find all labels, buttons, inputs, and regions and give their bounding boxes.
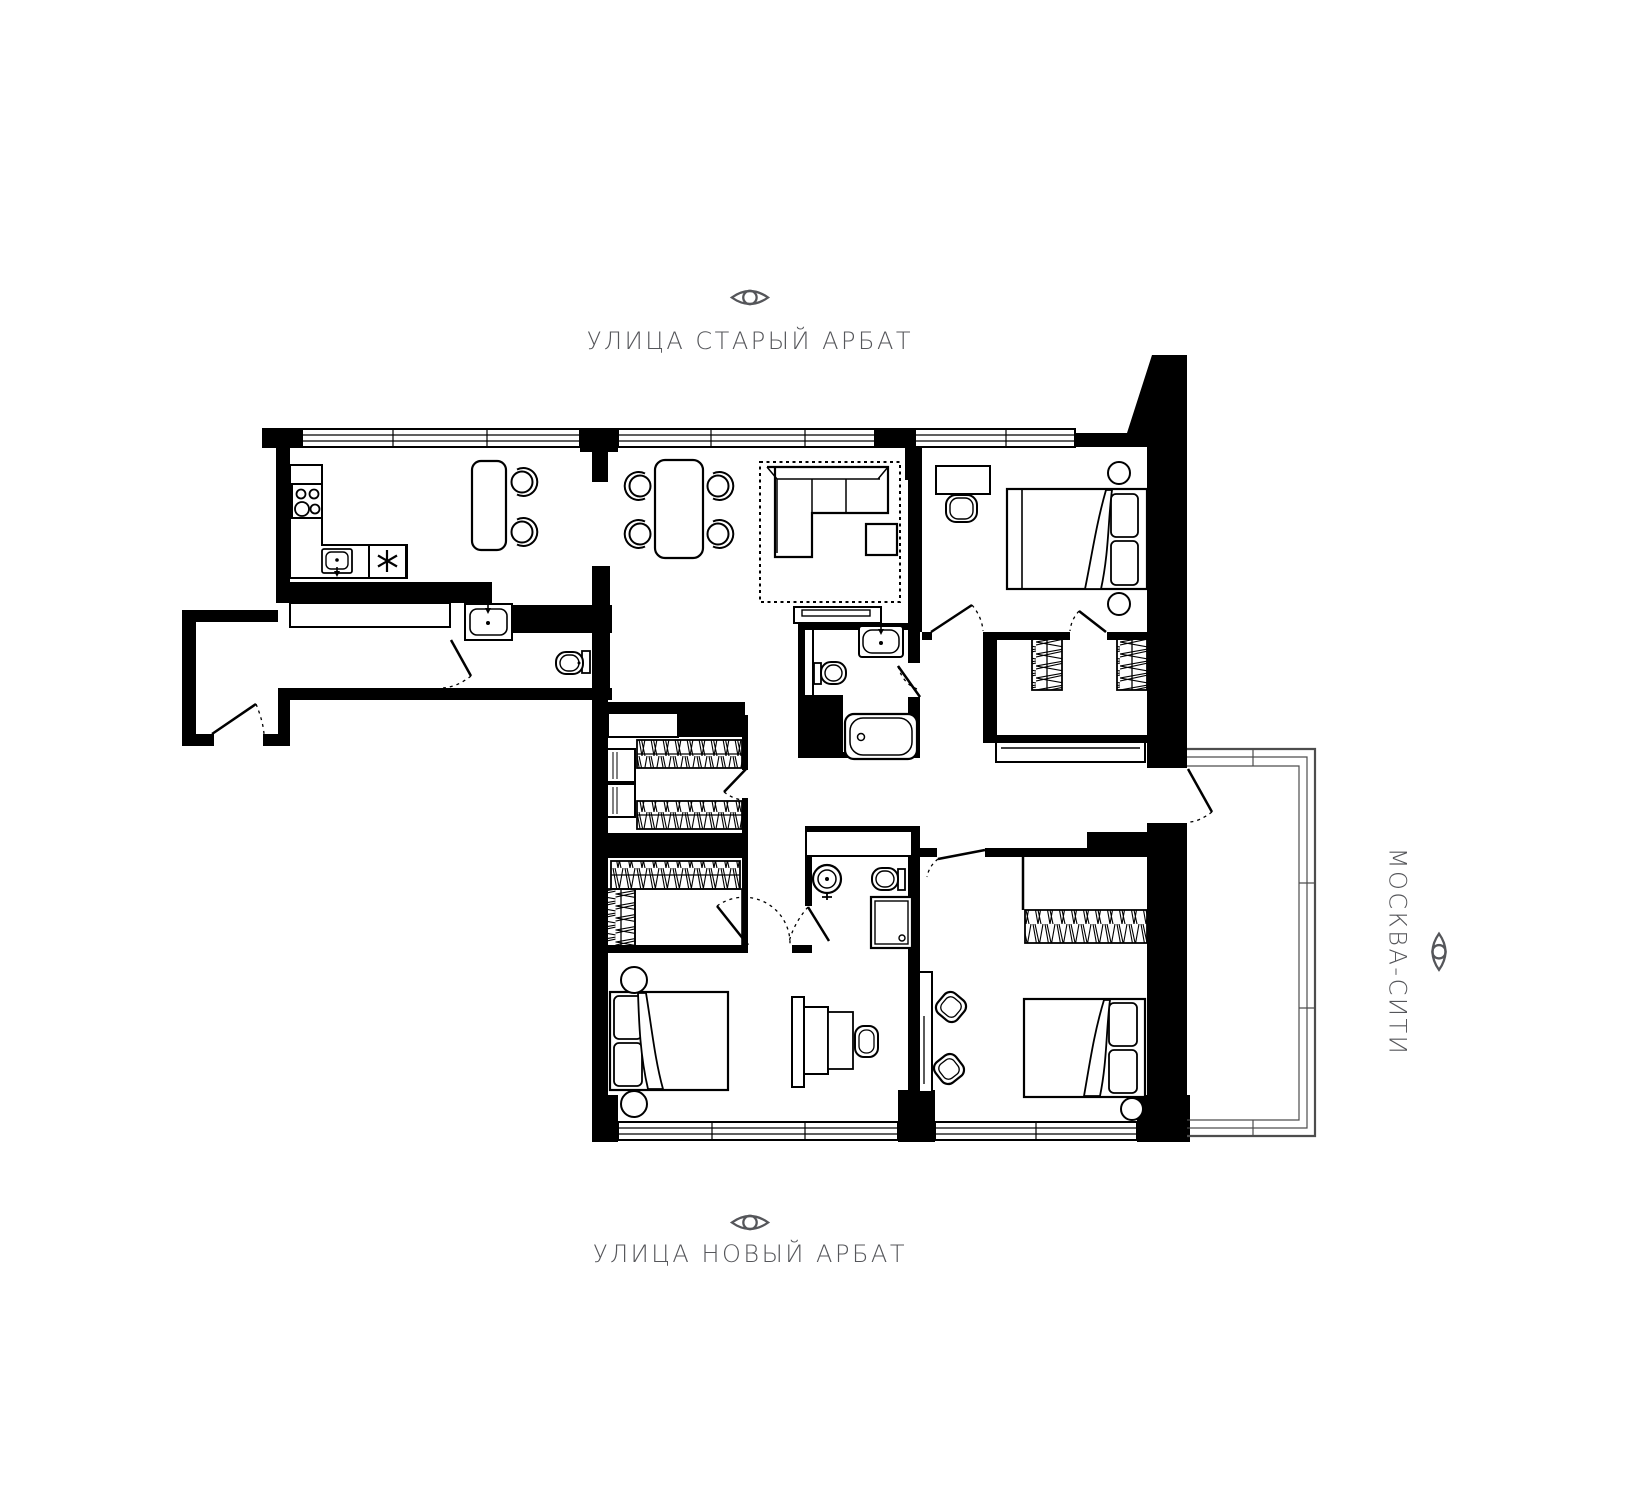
kitchen-chair (512, 468, 538, 496)
door-bedroom1 (931, 605, 983, 632)
round-sink (813, 865, 841, 900)
chair (931, 1051, 967, 1087)
living-furniture (760, 462, 900, 623)
desk (919, 972, 932, 1092)
door-closet1 (1070, 611, 1106, 632)
window-kitchen (302, 429, 580, 447)
toilet (814, 662, 846, 684)
street-label-right: МОСКВА-СИТИ (1384, 848, 1453, 1056)
kitchen-table (472, 461, 506, 550)
shower (871, 897, 912, 948)
balcony (1187, 749, 1315, 1136)
street-label-text: УЛИЦА СТАРЫЙ АРБАТ (587, 327, 913, 355)
washer (607, 749, 635, 782)
bedroom2-furniture (610, 967, 878, 1117)
laundry-room (607, 712, 742, 829)
kitchen-sink (322, 549, 352, 577)
dishwasher (369, 545, 406, 578)
wardrobe-room (607, 861, 742, 948)
dining-chair (708, 472, 734, 500)
bedroom3-furniture (919, 857, 1147, 1120)
vanity-counter (806, 831, 912, 856)
hall-console (290, 603, 450, 627)
window-living (618, 429, 875, 447)
bed (610, 992, 728, 1090)
desk-chair (946, 495, 977, 522)
duct-shaft (803, 695, 843, 752)
hall-console (996, 742, 1145, 762)
bed (1024, 999, 1145, 1097)
bed (1007, 489, 1147, 589)
desk-chair (855, 1026, 878, 1057)
dining-furniture (625, 460, 734, 558)
pillow (614, 1043, 642, 1086)
kitchen-furniture (290, 461, 537, 627)
sink (859, 626, 903, 657)
street-label-bottom: УЛИЦА НОВЫЙ АРБАТ (593, 1201, 907, 1268)
bedroom1-furniture (936, 462, 1147, 615)
toilet (872, 868, 905, 890)
desk (936, 466, 990, 494)
dining-chair (708, 520, 734, 548)
door-entrance (212, 704, 264, 734)
pillow (1109, 1050, 1137, 1093)
eye-icon (1422, 931, 1453, 973)
dining-table (655, 460, 703, 558)
street-label-text: УЛИЦА НОВЫЙ АРБАТ (593, 1240, 907, 1268)
bathtub (845, 714, 917, 759)
tv-console (794, 607, 881, 623)
door-balcony (1188, 769, 1212, 822)
nightstand (1121, 1098, 1143, 1120)
door-main-bathroom (898, 666, 920, 697)
window-bedroom2 (618, 1122, 898, 1140)
counter (608, 713, 678, 737)
chair (933, 989, 970, 1026)
window-bedroom3 (935, 1122, 1137, 1140)
counter-dark (678, 712, 742, 737)
door-kids-bathroom (789, 907, 829, 942)
pillow (1111, 494, 1138, 537)
wardrobe-rail (1025, 910, 1147, 943)
eye-icon (729, 1209, 771, 1240)
dryer (607, 784, 635, 817)
street-label-text: МОСКВА-СИТИ (1384, 848, 1412, 1056)
window-bedroom1 (915, 429, 1075, 447)
closet1 (996, 636, 1147, 762)
street-label-top: УЛИЦА СТАРЫЙ АРБАТ (587, 284, 913, 355)
nightstand (621, 967, 647, 993)
nightstand (621, 1091, 647, 1117)
pillow (1111, 541, 1138, 585)
door-laundry (724, 768, 747, 800)
dining-chair (625, 472, 651, 500)
sink (465, 604, 512, 640)
kitchen-chair (512, 518, 538, 546)
nightstand (1108, 593, 1130, 615)
eye-icon (729, 284, 771, 315)
nightstand (1108, 462, 1130, 484)
door-guest-wc (443, 640, 471, 688)
pillow (1109, 1003, 1137, 1046)
toilet (556, 651, 590, 674)
floor-plan (0, 0, 1635, 1500)
desk (792, 997, 853, 1087)
coffee-table (866, 524, 897, 555)
door-bedroom2 (717, 897, 790, 945)
dining-chair (625, 520, 651, 548)
floor-plan-page: УЛИЦА СТАРЫЙ АРБАТ УЛИЦА НОВЫЙ АРБАТ МОС… (0, 0, 1635, 1500)
